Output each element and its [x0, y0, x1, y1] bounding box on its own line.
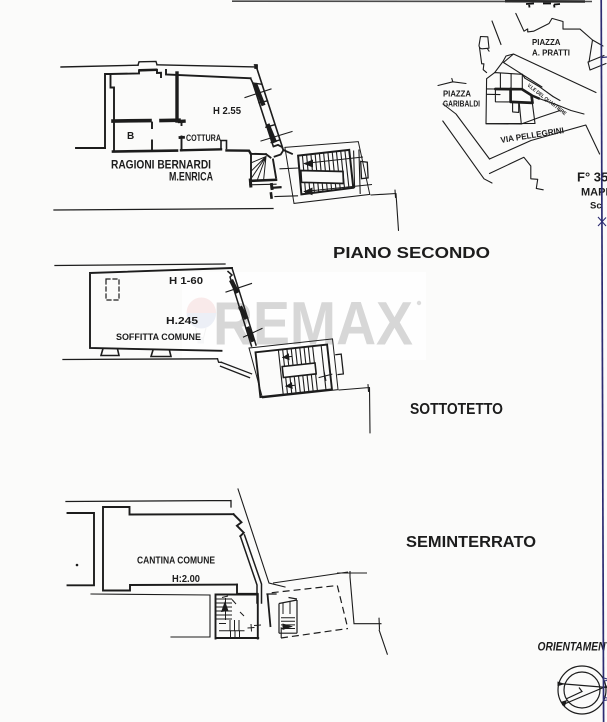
- svg-text:M.ENRICA: M.ENRICA: [169, 172, 213, 184]
- svg-text:B: B: [127, 131, 134, 142]
- svg-text:GARIBALDI: GARIBALDI: [443, 100, 480, 109]
- svg-text:H 2.55: H 2.55: [213, 106, 241, 117]
- svg-text:Sc: Sc: [590, 201, 602, 212]
- svg-text:COTTURA: COTTURA: [186, 133, 221, 144]
- svg-text:SOFFITTA COMUNE: SOFFITTA COMUNE: [116, 332, 201, 343]
- svg-text:A. PRATTI: A. PRATTI: [532, 49, 570, 58]
- svg-text:H 1-60: H 1-60: [169, 276, 203, 287]
- svg-text:PIAZZA: PIAZZA: [532, 38, 561, 47]
- svg-text:PIANO SECONDO: PIANO SECONDO: [333, 245, 490, 262]
- svg-text:RAGIONI BERNARDI: RAGIONI BERNARDI: [111, 160, 211, 172]
- svg-text:PIAZZA: PIAZZA: [443, 90, 471, 99]
- svg-text:CANTINA COMUNE: CANTINA COMUNE: [137, 555, 215, 567]
- svg-text:H:2.00: H:2.00: [172, 574, 200, 585]
- svg-text:ORIENTAMENTO: ORIENTAMENTO: [538, 640, 607, 654]
- svg-text:MAPP.: MAPP.: [581, 187, 607, 199]
- svg-text:SOTTOTETTO: SOTTOTETTO: [410, 401, 503, 418]
- svg-text:SEMINTERRATO: SEMINTERRATO: [406, 534, 536, 551]
- svg-text:H.245: H.245: [166, 316, 199, 327]
